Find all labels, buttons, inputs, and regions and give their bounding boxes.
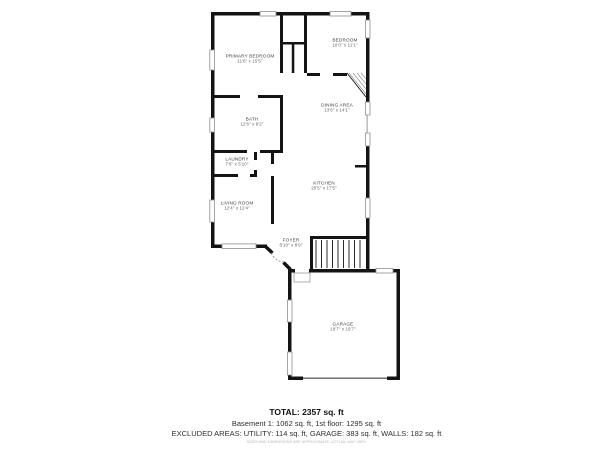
room-dims: 12'6" x 9'2"	[202, 123, 303, 129]
room-label-bedroom: BEDROOM 10'0" x 11'1"	[295, 38, 396, 50]
room-dims: 20'5" x 17'5"	[274, 187, 375, 193]
total-area-text: TOTAL: 2357 sq. ft	[0, 407, 613, 417]
room-label-bath: BATH 12'6" x 9'2"	[202, 117, 303, 129]
front-door-swing	[271, 252, 284, 262]
room-label-garage: GARAGE 19'7" x 19'7"	[293, 322, 394, 334]
floorplan-drawing	[0, 0, 613, 460]
room-dims: 8'10" x 8'9"	[241, 244, 342, 250]
floor-areas-text: Basement 1: 1062 sq. ft, 1st floor: 1295…	[0, 419, 613, 428]
room-dims: 11'6" x 15'5"	[200, 60, 301, 66]
room-label-laundry: LAUNDRY 7'6" x 5'10"	[187, 157, 288, 169]
excluded-areas-text: EXCLUDED AREAS: UTILITY: 114 sq. ft, GAR…	[0, 429, 613, 438]
room-dims: 10'0" x 11'1"	[295, 44, 396, 50]
floorplan-page: PRIMARY BEDROOM 11'6" x 15'5" BEDROOM 10…	[0, 0, 613, 460]
room-label-kitchen: KITCHEN 20'5" x 17'5"	[274, 181, 375, 193]
room-dims: 19'7" x 19'7"	[293, 328, 394, 334]
entry-step	[294, 273, 310, 282]
windows	[210, 11, 393, 375]
room-label-primary-bedroom: PRIMARY BEDROOM 11'6" x 15'5"	[200, 54, 301, 66]
room-label-living-room: LIVING ROOM 12'4" x 12'4"	[187, 201, 288, 213]
room-label-foyer: FOYER 8'10" x 8'9"	[241, 238, 342, 250]
interior-walls	[211, 12, 366, 269]
room-dims: 12'4" x 12'4"	[187, 207, 288, 213]
room-dims: 13'6" x 14'1"	[287, 109, 388, 115]
basement-stairs-corner	[347, 73, 366, 97]
area-summary: TOTAL: 2357 sq. ft Basement 1: 1062 sq. …	[0, 407, 613, 447]
disclaimer-text: SIZES AND DIMENSIONS ARE APPROXIMATE, AC…	[138, 440, 475, 444]
room-label-dining-area: DINING AREA 13'6" x 14'1"	[287, 103, 388, 115]
room-dims: 7'6" x 5'10"	[187, 163, 288, 169]
